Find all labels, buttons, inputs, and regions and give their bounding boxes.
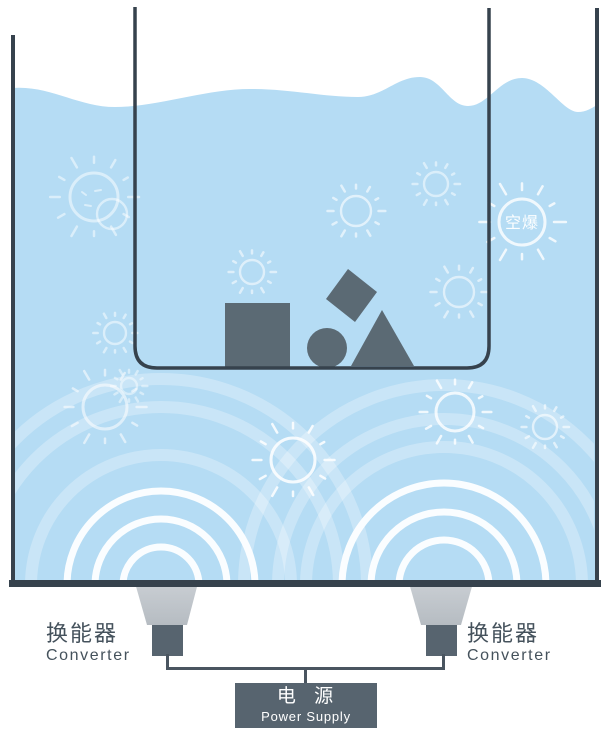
converter-label-right-zh: 换能器 <box>467 622 552 645</box>
cavitation-label: 空爆 <box>505 213 539 232</box>
converter-label-left-zh: 换能器 <box>46 622 131 645</box>
bubble-ray <box>561 417 563 418</box>
bubble-ray <box>233 261 236 263</box>
bubble-ray <box>452 174 454 175</box>
bubble-ray <box>130 323 132 324</box>
bubble-ray <box>376 222 379 224</box>
bubble-ray <box>97 342 100 344</box>
bubble-ray <box>141 378 143 379</box>
ultrasonic-cleaner-diagram: 空爆 换能器 Converter 换能器 Converter 电 源 Power… <box>0 0 611 741</box>
bubble-ray <box>136 371 138 374</box>
bubble-ray <box>526 436 529 438</box>
bubble-ray <box>452 193 455 195</box>
transducer-element <box>426 625 457 656</box>
power-supply-box: 电 源 Power Supply <box>235 683 377 728</box>
object-square <box>225 303 290 367</box>
object-circle <box>307 328 347 368</box>
power-supply-label-en: Power Supply <box>261 709 351 724</box>
bubble-ray <box>376 198 379 200</box>
bubble-ray <box>268 281 271 283</box>
bubble-ray <box>333 198 336 200</box>
bubble-ray <box>233 281 236 283</box>
bubble-ray <box>436 279 439 281</box>
bubble-ray <box>98 323 100 324</box>
power-supply-label-zh: 电 源 <box>277 687 335 708</box>
bubble-ray <box>130 342 132 343</box>
tank-bottom <box>9 580 601 587</box>
bubble-ray <box>268 262 270 263</box>
transducer-horn <box>135 583 198 625</box>
bubble-ray <box>115 378 117 379</box>
bubble-ray <box>124 315 126 318</box>
power-wires <box>168 654 444 684</box>
bubble-ray <box>479 396 482 398</box>
bubble-ray <box>115 393 118 395</box>
bubble-ray <box>479 279 482 281</box>
bubble-ray <box>417 193 420 195</box>
bubble-ray <box>417 173 420 175</box>
bubble-ray <box>141 393 143 394</box>
bubble-ray <box>561 436 564 438</box>
transducer-element <box>152 625 183 656</box>
bubble-ray <box>526 416 529 418</box>
converter-label-right-en: Converter <box>467 648 552 665</box>
converter-label-left-en: Converter <box>46 648 131 665</box>
transducer-right <box>409 583 473 656</box>
converter-label-left: 换能器 Converter <box>46 622 131 665</box>
converter-label-right: 换能器 Converter <box>467 622 552 665</box>
bubble-ray <box>479 303 482 305</box>
transducer-left <box>135 583 198 656</box>
transducer-horn <box>409 583 473 625</box>
